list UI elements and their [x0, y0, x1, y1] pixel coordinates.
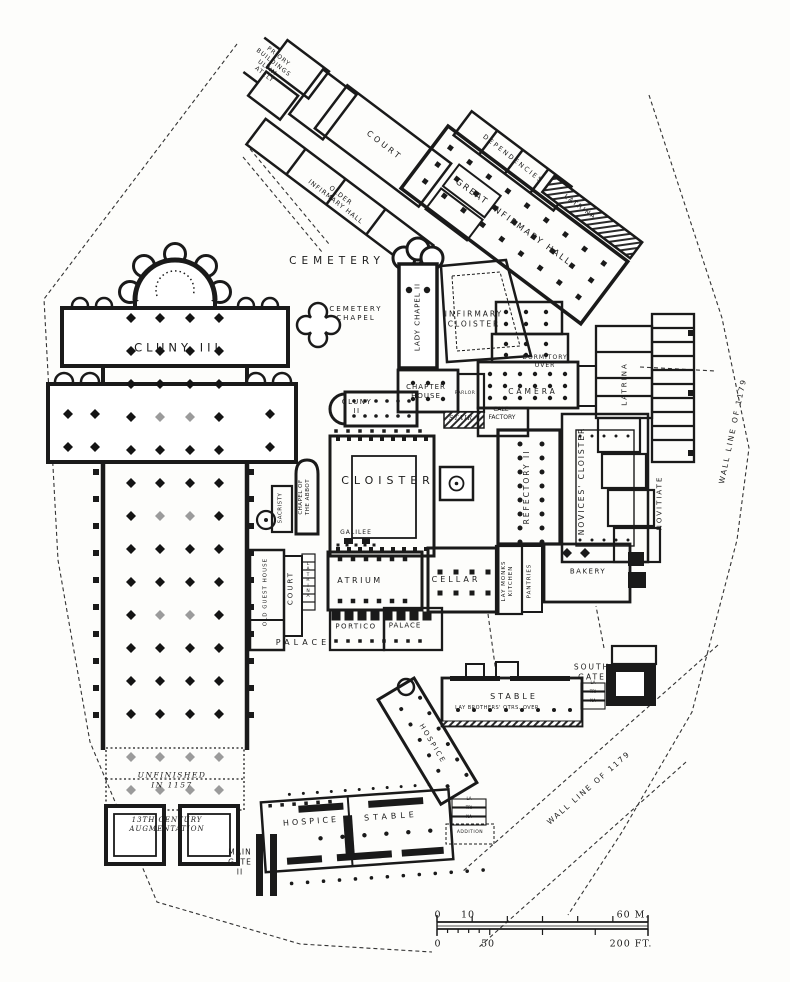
parlor-structure	[458, 374, 484, 412]
bottom-complex	[260, 780, 485, 887]
latrina-east-structure	[596, 326, 652, 418]
hospice-upper-structure	[378, 678, 477, 804]
scale-ticks	[437, 916, 648, 935]
latrina-stable-structure	[452, 799, 486, 825]
scale-bar	[437, 915, 648, 936]
chapel-of-abbot-structure	[296, 460, 318, 534]
lady-chapel-structure	[393, 238, 443, 368]
plan-drawing	[0, 0, 790, 982]
refectory-structure	[498, 430, 560, 544]
fountain-pavilion	[440, 467, 473, 500]
church-cluny-iii	[48, 244, 296, 865]
latrina-gate-structure	[581, 683, 605, 709]
minor-transept	[62, 298, 288, 366]
cluny-ii-structure	[330, 392, 417, 426]
latrina-court-structure	[302, 554, 315, 610]
pantries-structure	[522, 546, 542, 612]
south-gate-annex	[612, 646, 656, 664]
galilee-pier	[344, 538, 353, 544]
cloister-garth	[352, 456, 416, 538]
kitchen-structure	[496, 546, 522, 614]
dormitory-room-upper	[496, 302, 562, 334]
latrina-top-structure	[542, 176, 642, 258]
cemetery-chapel-structure	[297, 303, 340, 347]
east-outbuilding	[652, 314, 694, 462]
sacristy-structure	[272, 486, 292, 532]
cellar-structure	[428, 548, 498, 612]
court-annex-1	[443, 164, 501, 217]
court-west-structure	[284, 556, 302, 636]
plan-canvas: 0 10 60 M. 0 50 200 FT. PRIORY BUILDINGS…	[0, 0, 790, 982]
camera-annex	[578, 366, 596, 406]
claustral-buildings	[257, 302, 694, 614]
calefactory-structure	[478, 408, 528, 436]
old-guest-house-structure	[250, 550, 284, 650]
major-transept	[48, 373, 296, 462]
camera-structure	[478, 362, 578, 408]
southeast-group	[378, 646, 656, 804]
priory-buildings-structure	[231, 28, 358, 147]
buttresses	[93, 469, 254, 718]
south-range	[250, 544, 646, 650]
galilee-pier	[362, 538, 370, 544]
west-towers	[106, 806, 238, 864]
court-structure	[315, 85, 451, 206]
misc-pier-marks	[332, 310, 630, 712]
stable-south-structure	[442, 662, 582, 726]
bakery-structure	[544, 544, 646, 602]
